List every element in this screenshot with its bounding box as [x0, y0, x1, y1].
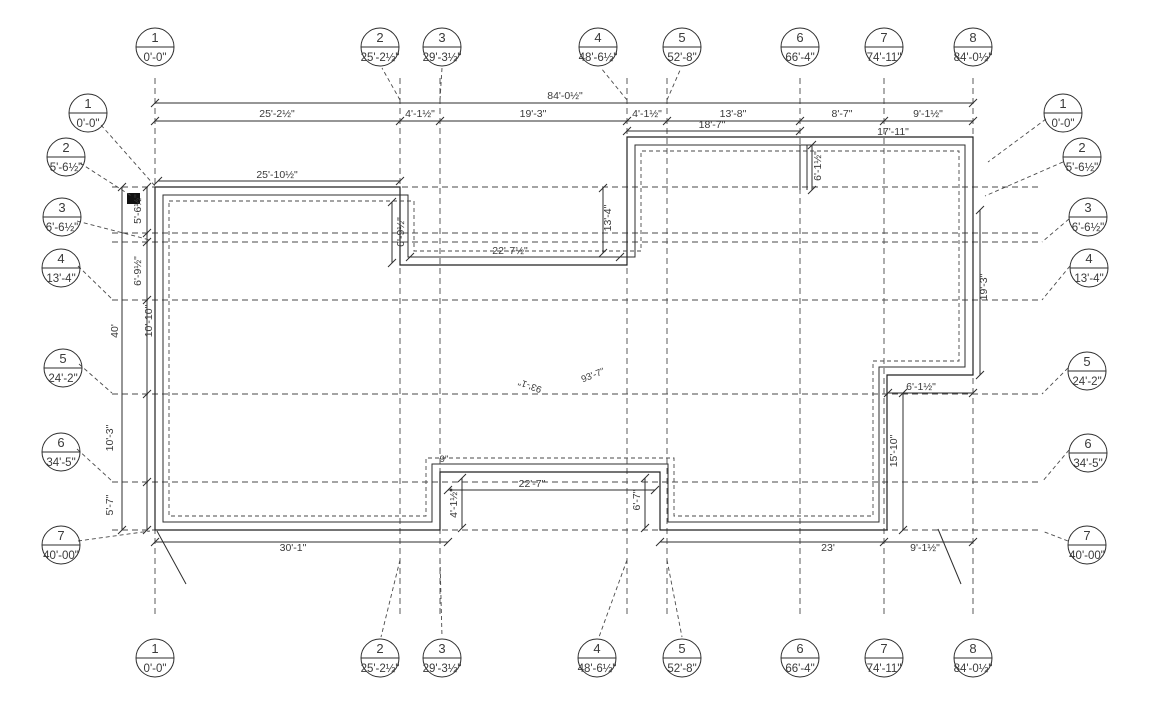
grid-bubble-bottom-8: 8 84'-0½"	[954, 639, 993, 677]
dim-left-chain-1: 5'-6½"	[132, 194, 144, 224]
grid-horizontal-lines	[112, 187, 1040, 530]
dim-top-left-width: 25'-10½"	[256, 169, 298, 181]
bubble-station: 0'-0"	[144, 52, 167, 64]
dim-upper-step: 6'-1½"	[812, 151, 824, 181]
bubble-number: 7	[57, 528, 64, 543]
bubble-number: 4	[593, 641, 600, 656]
dim-bottom-chain-1: 30'-1"	[280, 542, 307, 554]
grid-bubble-bottom-5: 5 52'-8"	[663, 639, 701, 677]
grid-bubble-top-6: 6 66'-4"	[781, 28, 819, 66]
bubble-station: 25'-2½"	[361, 663, 400, 675]
grid-bubble-bottom-6: 6 66'-4"	[781, 639, 819, 677]
grid-bubble-top-2: 2 25'-2½"	[361, 28, 400, 66]
dim-top-chain-1: 25'-2½"	[259, 108, 295, 120]
bubble-station: 0'-0"	[77, 118, 100, 130]
dim-bottom-notch-left: 4'-1½"	[448, 488, 460, 518]
bubble-number: 1	[151, 641, 158, 656]
bubble-number: 5	[59, 351, 66, 366]
bubble-number: 6	[1084, 436, 1091, 451]
grid-bubble-right-2: 2 5'-6½"	[1063, 138, 1101, 176]
bubble-station: 40'-00"	[43, 550, 79, 562]
dim-right-step-width: 6'-1½"	[906, 381, 936, 393]
bubble-number: 8	[969, 641, 976, 656]
bubble-station: 66'-4"	[785, 663, 814, 675]
dim-mid-notch-depth: 13'-4"	[602, 204, 614, 231]
bubble-station: 29'-3½"	[423, 663, 462, 675]
dimension-labels: 84'-0½" 25'-2½" 4'-1½" 19'-3" 4'-1½" 13'…	[104, 90, 990, 554]
bubble-number: 3	[438, 641, 445, 656]
dim-overall-width: 84'-0½"	[547, 90, 583, 102]
dim-bottom-notch-width: 22'-7"	[519, 478, 546, 490]
dim-top-chain-6: 8'-7"	[832, 108, 853, 120]
bubble-station: 84'-0½"	[954, 663, 993, 675]
footing-dashed-outline	[169, 151, 959, 516]
grid-bubble-right-6: 6 34'-5"	[1069, 434, 1107, 472]
grid-bubble-left-5: 5 24'-2"	[44, 349, 82, 387]
wall-outer-face	[155, 137, 973, 530]
dim-left-chain-3: 10'-10"	[143, 304, 155, 337]
grid-bubble-bottom-3: 3 29'-3½"	[423, 639, 462, 677]
bubble-number: 4	[1085, 251, 1092, 266]
bubble-number: 5	[678, 641, 685, 656]
grid-bubble-right-7: 7 40'-00"	[1068, 526, 1106, 564]
grid-bubble-top-1: 1 0'-0"	[136, 28, 174, 66]
bubble-station: 48'-6½"	[578, 663, 617, 675]
bubble-station: 84'-0½"	[954, 52, 993, 64]
grid-bubble-top-3: 3 29'-3½"	[423, 28, 462, 66]
bubble-number: 3	[1084, 200, 1091, 215]
dim-overall-height: 40'	[109, 324, 121, 338]
bubble-number: 6	[57, 435, 64, 450]
bubble-station: 52'-8"	[667, 663, 696, 675]
cad-drawing-canvas: 84'-0½" 25'-2½" 4'-1½" 19'-3" 4'-1½" 13'…	[0, 0, 1149, 707]
bubble-station: 6'-6½"	[46, 222, 79, 234]
bubble-number: 5	[1083, 354, 1090, 369]
bubble-number: 7	[880, 641, 887, 656]
bubble-station: 24'-2"	[1072, 376, 1101, 388]
dim-diagonal-b: 93'-7"	[580, 366, 607, 385]
bubble-number: 2	[376, 30, 383, 45]
dim-bottom-chain-2: 23'	[821, 542, 835, 554]
grid-bubble-left-4: 4 13'-4"	[42, 249, 80, 287]
bubble-number: 6	[796, 641, 803, 656]
dim-bottom-notch-offset: 9"	[440, 454, 449, 465]
dim-left-chain-5: 5'-7"	[104, 494, 116, 515]
dim-left-notch-depth: 6'-9½"	[395, 217, 407, 247]
dimension-lines	[118, 99, 984, 546]
bubble-number: 6	[796, 30, 803, 45]
grid-bubble-left-6: 6 34'-5"	[42, 433, 80, 471]
bubble-station: 5'-6½"	[1066, 162, 1099, 174]
bubble-station: 34'-5"	[1073, 458, 1102, 470]
grid-bubble-left-3: 3 6'-6½"	[43, 198, 81, 236]
grid-bubbles-bottom: 1 0'-0" 2 25'-2½" 3 29'-3½" 4 48'-6½" 5 …	[136, 639, 992, 677]
grid-bubble-bottom-2: 2 25'-2½"	[361, 639, 400, 677]
dim-mid-notch-width: 22'-7½"	[492, 245, 528, 257]
wall-inner-face	[163, 145, 965, 522]
bubble-station: 0'-0"	[1052, 118, 1075, 130]
bubble-number: 5	[678, 30, 685, 45]
bubble-station: 5'-6½"	[50, 162, 83, 174]
bubble-station: 13'-4"	[1074, 273, 1103, 285]
bubble-number: 7	[1083, 528, 1090, 543]
dim-diagonal-a: 93'-1"	[517, 376, 544, 395]
bubble-number: 1	[151, 30, 158, 45]
bubble-station: 34'-5"	[46, 457, 75, 469]
dim-top-chain-4: 4'-1½"	[632, 108, 662, 120]
bubble-station: 66'-4"	[785, 52, 814, 64]
grid-bubbles-top: 1 0'-0" 2 25'-2½" 3 29'-3½" 4 48'-6½" 5 …	[136, 28, 992, 66]
bubble-number: 1	[1059, 96, 1066, 111]
grid-bubble-bottom-7: 7 74'-11"	[865, 639, 903, 677]
dim-right-side-height: 19'-3"	[978, 273, 990, 300]
bubble-number: 3	[438, 30, 445, 45]
dim-upper-right-width-b: 17'-11"	[877, 126, 909, 138]
bubble-station: 52'-8"	[667, 52, 696, 64]
grid-bubble-top-4: 4 48'-6½"	[579, 28, 618, 66]
dim-lines	[122, 103, 980, 542]
grid-bubble-top-7: 7 74'-11"	[865, 28, 903, 66]
dim-left-chain-4: 10'-3"	[104, 424, 116, 451]
dim-top-chain-2: 4'-1½"	[405, 108, 435, 120]
bubble-number: 7	[880, 30, 887, 45]
bubble-number: 3	[58, 200, 65, 215]
interior-stub-wall	[800, 145, 807, 190]
bubble-station: 74'-11"	[867, 663, 902, 675]
floor-plan-svg: 84'-0½" 25'-2½" 4'-1½" 19'-3" 4'-1½" 13'…	[0, 0, 1149, 707]
dim-left-chain-2: 6'-9½"	[132, 256, 144, 286]
grid-bubble-right-4: 4 13'-4"	[1070, 249, 1108, 287]
grid-lines	[112, 78, 1040, 618]
dim-tick-marks	[118, 99, 984, 546]
grid-bubble-top-5: 5 52'-8"	[663, 28, 701, 66]
bubble-number: 2	[1078, 140, 1085, 155]
grid-bubbles-left: 1 0'-0" 2 5'-6½" 3 6'-6½" 4 13'-4" 5 24'…	[42, 94, 107, 564]
bubble-station: 29'-3½"	[423, 52, 462, 64]
bubble-station: 25'-2½"	[361, 52, 400, 64]
bubble-number: 2	[62, 140, 69, 155]
bubble-number: 8	[969, 30, 976, 45]
dim-top-chain-7: 9'-1½"	[913, 108, 943, 120]
grid-bubble-left-1: 1 0'-0"	[69, 94, 107, 132]
grid-bubble-right-5: 5 24'-2"	[1068, 352, 1106, 390]
bubble-station: 48'-6½"	[579, 52, 618, 64]
grid-bubble-top-8: 8 84'-0½"	[954, 28, 993, 66]
dim-bottom-chain-3: 9'-1½"	[910, 542, 940, 554]
bubble-station: 24'-2"	[48, 373, 77, 385]
dim-top-chain-3: 19'-3"	[520, 108, 547, 120]
bubble-station: 0'-0"	[144, 663, 167, 675]
bubble-station: 6'-6½"	[1072, 222, 1105, 234]
bubble-station: 13'-4"	[46, 273, 75, 285]
grid-bubbles-right: 1 0'-0" 2 5'-6½" 3 6'-6½" 4 13'-4" 5 24'…	[1044, 94, 1108, 564]
bubble-number: 2	[376, 641, 383, 656]
grid-vertical-lines	[155, 78, 973, 618]
bubble-station: 74'-11"	[867, 52, 902, 64]
wall-outline	[127, 137, 973, 584]
dim-upper-right-width-a: 18'-7"	[699, 119, 726, 131]
bubble-number: 1	[84, 96, 91, 111]
grid-bubble-right-3: 3 6'-6½"	[1069, 198, 1107, 236]
grid-bubble-bottom-1: 1 0'-0"	[136, 639, 174, 677]
bubble-number: 4	[57, 251, 64, 266]
dim-right-lower-height: 15'-10"	[888, 434, 900, 467]
section-cut-marks	[157, 529, 961, 584]
bubble-number: 4	[594, 30, 601, 45]
grid-bubble-bottom-4: 4 48'-6½"	[578, 639, 617, 677]
dim-bottom-notch-right: 6'-7"	[631, 489, 643, 510]
bubble-station: 40'-00"	[1069, 550, 1105, 562]
grid-bubble-left-7: 7 40'-00"	[42, 526, 80, 564]
grid-bubble-right-1: 1 0'-0"	[1044, 94, 1082, 132]
grid-bubble-left-2: 2 5'-6½"	[47, 138, 85, 176]
